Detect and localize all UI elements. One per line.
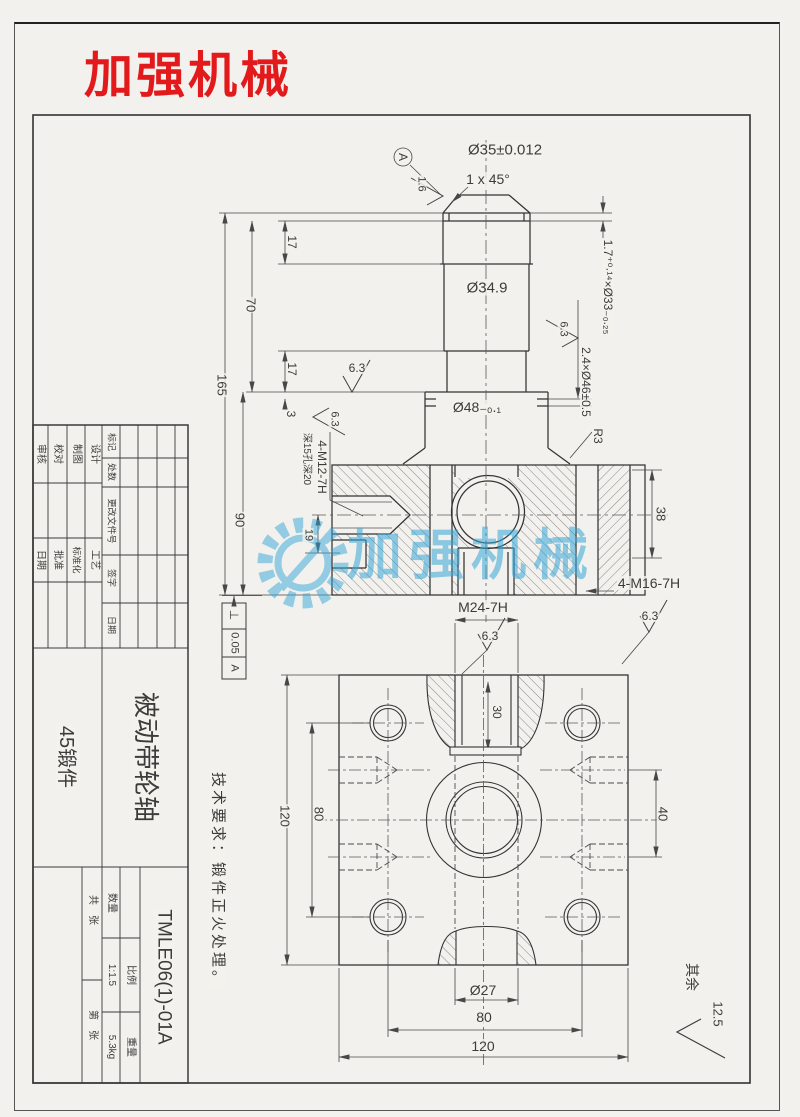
dim-80-left: 80 bbox=[313, 806, 326, 822]
dim-90: 90 bbox=[234, 512, 247, 528]
thread-m24: M24-7H bbox=[457, 600, 509, 614]
rest-rough-value: 12.5 bbox=[712, 1000, 725, 1027]
dim-40: 40 bbox=[657, 806, 670, 822]
tb-label-shuliang: 数量 bbox=[106, 892, 116, 914]
tb-label-bili: 比例 bbox=[125, 964, 135, 986]
tb-label-genggai: 更改文件号 bbox=[107, 497, 116, 544]
tb-label-riqi2: 日期 bbox=[107, 615, 116, 635]
company-logo: 加强机械 bbox=[84, 52, 292, 101]
dim-3: 3 bbox=[285, 410, 297, 419]
tb-label-biaozhunhua: 标准化 bbox=[72, 545, 81, 574]
tb-label-biaoji: 标记 bbox=[107, 432, 116, 452]
dim-dia35: Ø35±0.012 bbox=[467, 143, 543, 158]
rough-6-3-m16: 6.3 bbox=[641, 610, 660, 622]
dim-30: 30 bbox=[491, 704, 503, 719]
tb-label-riqi: 日期 bbox=[35, 549, 45, 571]
dim-80-bottom: 80 bbox=[475, 1010, 493, 1024]
rest-rough-label: 其余 bbox=[685, 962, 699, 992]
drawing-sheet: 加强机械 加强机械 Ø35±0.0121 x 45°A1.61.7⁺⁰·¹⁴×Ø… bbox=[0, 0, 800, 1117]
datum-a-label: A bbox=[397, 152, 409, 162]
dim-groove-flange: 2.4×Ø46±0.5 bbox=[580, 346, 592, 418]
tol-perp-datum: A bbox=[229, 663, 240, 672]
dim-19: 19 bbox=[303, 528, 314, 542]
tb-material: 45锻件 bbox=[56, 725, 76, 789]
dim-38: 38 bbox=[655, 506, 668, 522]
tb-value-bili: 1:1.5 bbox=[106, 963, 116, 987]
bottom-view bbox=[281, 655, 672, 1065]
drawing-frame bbox=[33, 115, 750, 1083]
rough-6-3-groove: 6.3 bbox=[558, 320, 569, 337]
dim-dia48: Ø48₋₀.₁ bbox=[452, 400, 502, 414]
dim-dia27: Ø27 bbox=[469, 983, 497, 997]
tb-label-pizhun: 批准 bbox=[52, 549, 62, 571]
tb-label-shenhe: 审核 bbox=[35, 443, 45, 465]
tb-part-name: 被动带轮轴 bbox=[133, 691, 159, 823]
rough-6-3-m24: 6.3 bbox=[481, 630, 500, 642]
watermark-text: 加强机械 bbox=[347, 528, 595, 583]
rough-6-3-left: 6.3 bbox=[348, 362, 367, 374]
tb-label-gongyi: 工艺 bbox=[89, 549, 99, 571]
tb-label-chushu: 处数 bbox=[107, 462, 116, 482]
dim-120-bottom: 120 bbox=[470, 1039, 495, 1053]
roughness-symbols bbox=[313, 178, 725, 1058]
tb-label-zhitu: 制图 bbox=[71, 443, 81, 465]
dim-165: 165 bbox=[216, 373, 229, 397]
tb-label-dizhang: 第 张 bbox=[87, 1009, 97, 1041]
tb-label-gongzhang: 共 张 bbox=[87, 894, 97, 926]
tb-value-zhongliang: 5.3kg bbox=[106, 1034, 116, 1060]
dim-r3: R3 bbox=[592, 427, 604, 444]
tb-label-qianzi: 签字 bbox=[107, 568, 116, 588]
tol-perp-symbol: ⊥ bbox=[228, 609, 240, 621]
rough-6-3-m12: 6.3 bbox=[329, 410, 340, 427]
tb-part-number: TMLE06(1)-01A bbox=[155, 908, 174, 1045]
thread-m16: 4-M16-7H bbox=[617, 576, 681, 590]
tech-requirement: 技术要求：锻件正火处理。 bbox=[211, 771, 226, 989]
dim-dia34-9: Ø34.9 bbox=[466, 281, 509, 296]
rough-1-6: 1.6 bbox=[416, 175, 427, 192]
tol-perp-value: 0.05 bbox=[229, 631, 240, 654]
thread-m12: 4-M12-7H bbox=[316, 439, 328, 494]
tb-label-sheji: 设计 bbox=[89, 443, 99, 465]
dim-120-left: 120 bbox=[279, 804, 292, 828]
thread-m12-depth: 深15孔深20 bbox=[301, 432, 311, 486]
dim-groove-top: 1.7⁺⁰·¹⁴×Ø33₋₀.₂₅ bbox=[602, 239, 614, 336]
tb-label-jiaodui: 校对 bbox=[52, 443, 62, 465]
tb-label-zhongliang: 重量 bbox=[125, 1036, 135, 1058]
dim-17-top: 17 bbox=[286, 234, 298, 249]
dim-70: 70 bbox=[245, 297, 258, 313]
dim-17-mid: 17 bbox=[286, 361, 298, 376]
dim-chamfer: 1 x 45° bbox=[465, 172, 511, 186]
